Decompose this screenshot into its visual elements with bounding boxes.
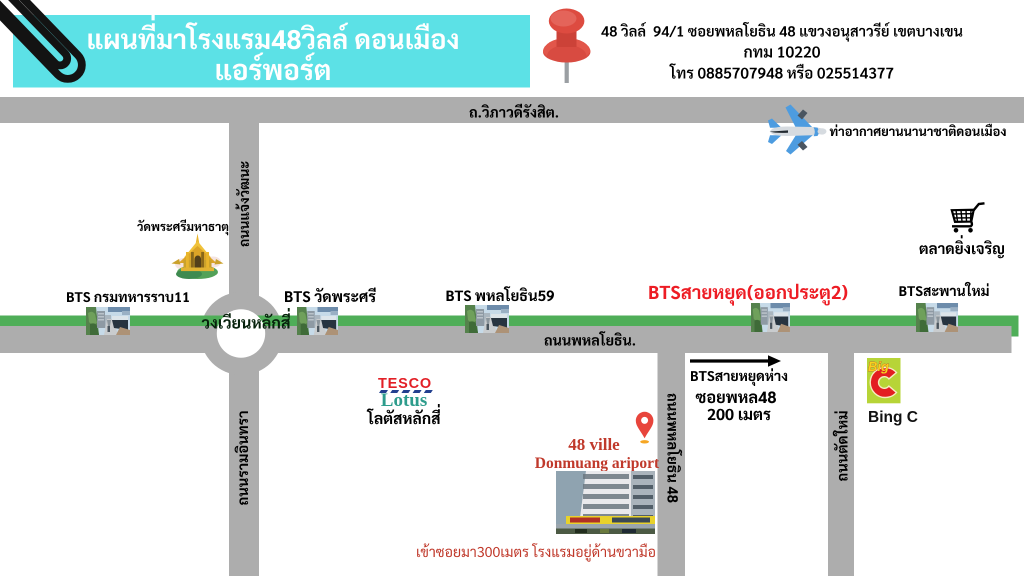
svg-text:Big: Big xyxy=(868,359,889,374)
svg-text:Bing C: Bing C xyxy=(868,409,918,426)
svg-text:Donmuang ariport: Donmuang ariport xyxy=(535,455,660,472)
svg-text:48 ville: 48 ville xyxy=(568,435,620,454)
svg-text:Lotus: Lotus xyxy=(381,390,427,411)
